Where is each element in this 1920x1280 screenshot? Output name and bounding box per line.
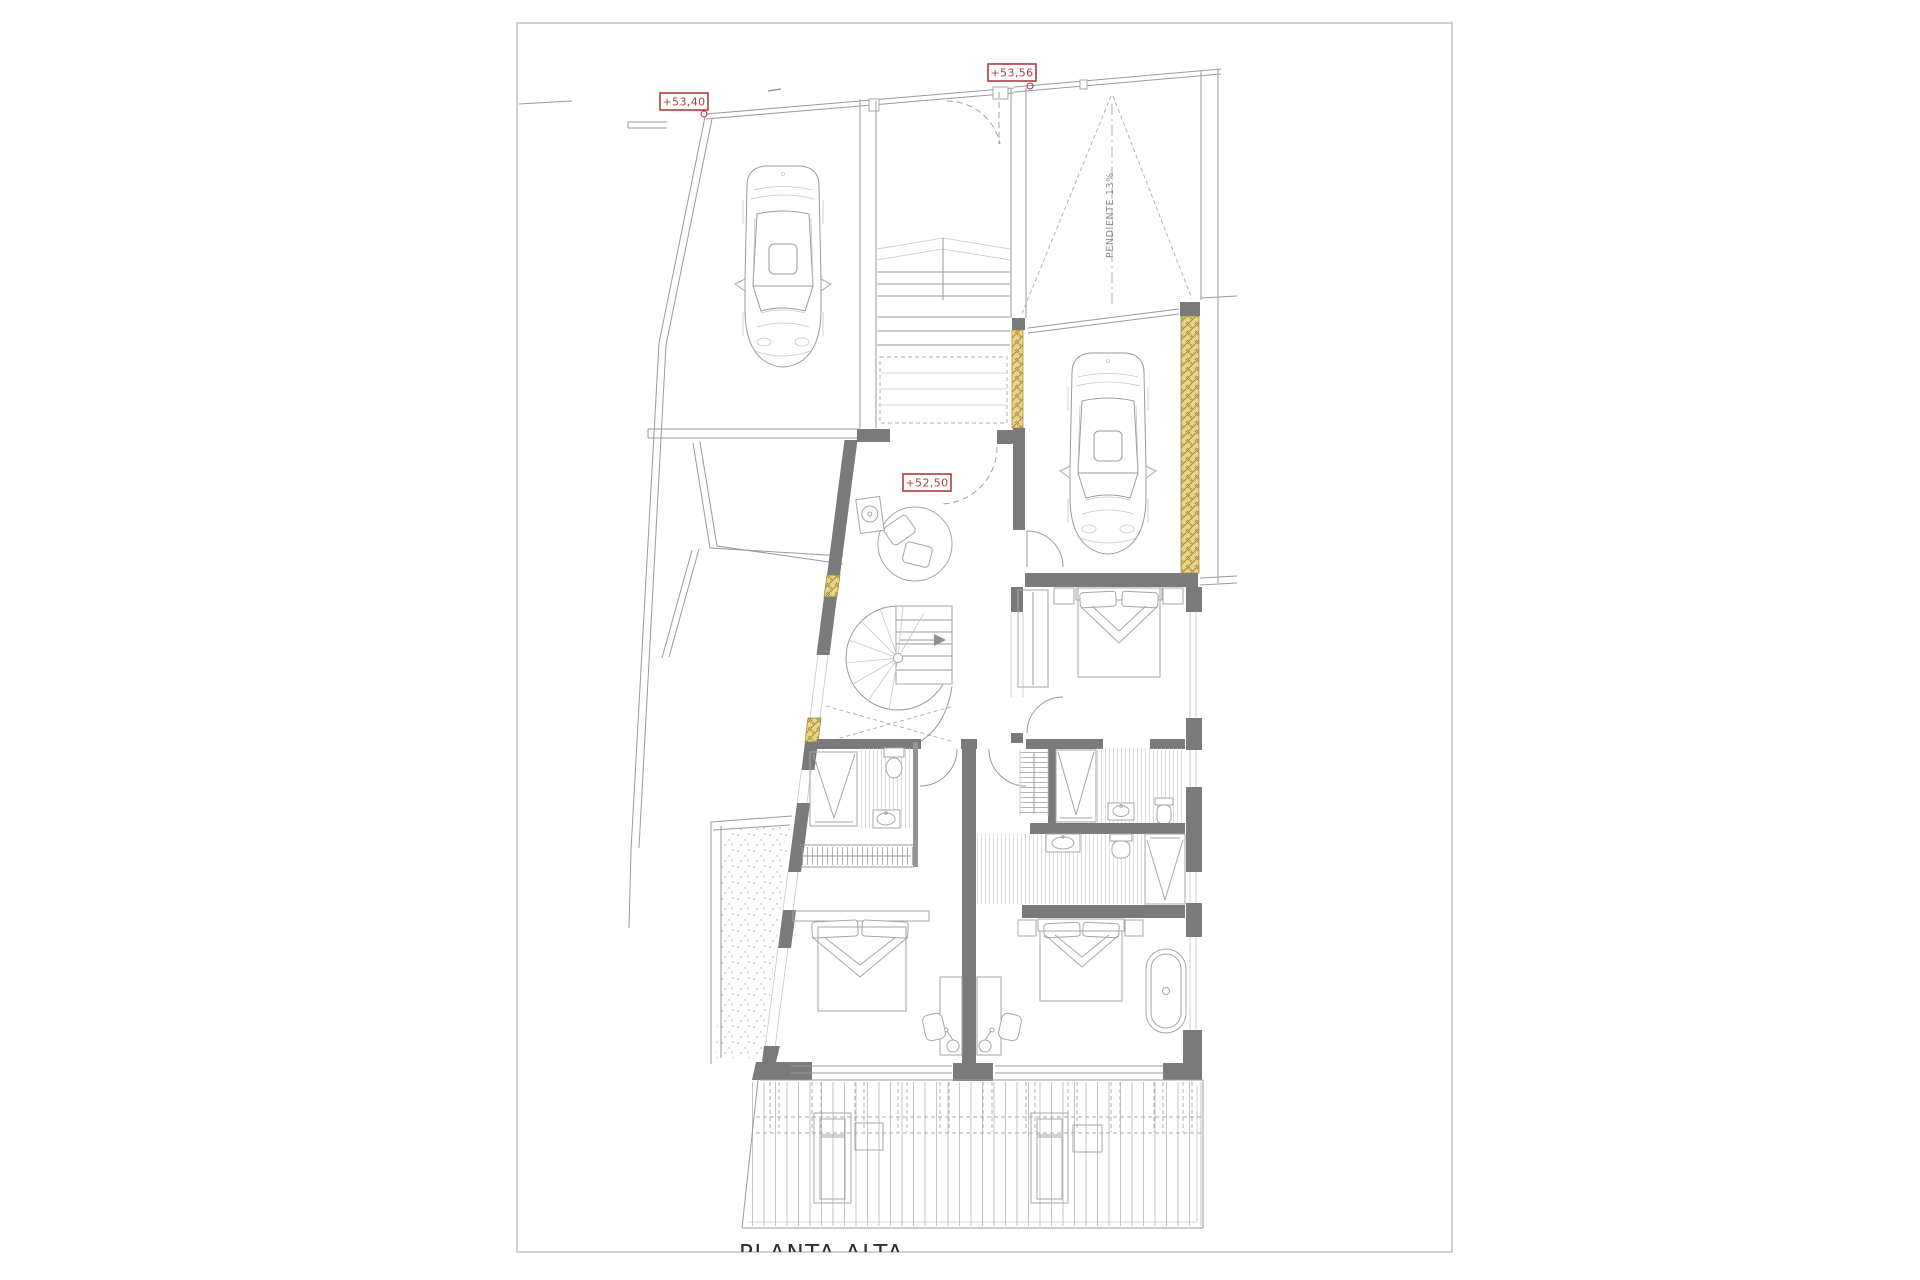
closet-strip [1020,750,1048,816]
wall-fixture [856,496,884,533]
shower-2 [1145,834,1185,904]
toilet-3 [884,748,904,778]
floor-plan-canvas: PENDIENTE 13% [0,0,1920,1280]
svg-text:+52,50: +52,50 [905,477,948,490]
svg-text:+53,56: +53,56 [990,67,1033,80]
sink-2 [1046,834,1080,852]
sink-1 [1108,803,1134,820]
sink-3 [873,810,900,828]
terrace [742,1080,1203,1228]
svg-text:+53,40: +53,40 [662,96,705,109]
wardrobe-2 [800,845,913,867]
elevation-label-hall: +52,50 [903,474,951,491]
plan-title: PLANTA ALTA [739,1241,904,1267]
shower-1 [1056,750,1096,822]
svg-text:PLANTA ALTA: PLANTA ALTA [739,1241,904,1267]
toilet-2 [1110,834,1132,858]
toilet-1 [1155,798,1173,824]
ramp-slope-label: PENDIENTE 13% [1105,172,1116,258]
